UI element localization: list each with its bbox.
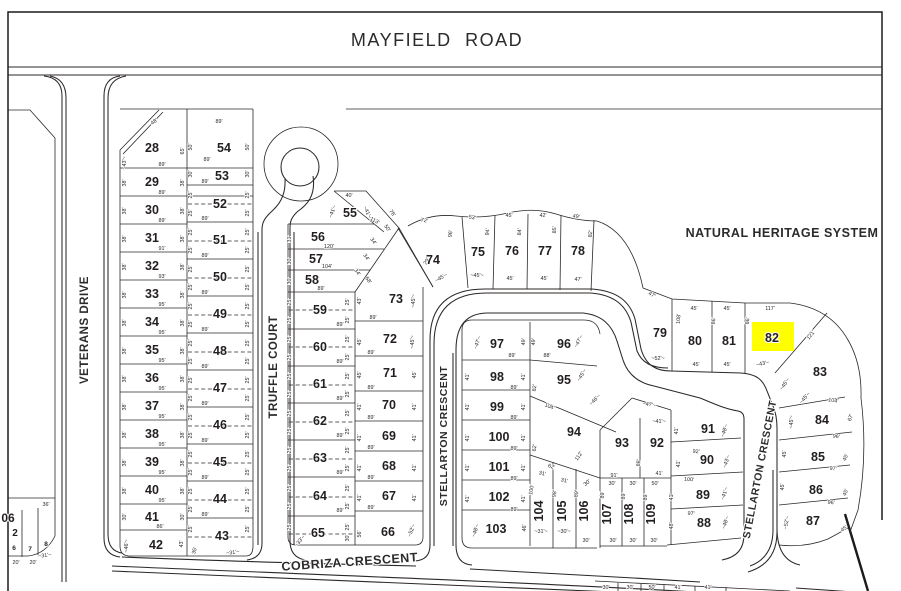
dimension-label: 25' bbox=[345, 390, 351, 397]
lot-number-70: 70 bbox=[382, 398, 396, 412]
lot-number-105: 105 bbox=[555, 501, 569, 522]
dimension-label: 25' bbox=[345, 372, 351, 379]
lot-number-35: 35 bbox=[145, 343, 159, 357]
dimension-label: 45' bbox=[780, 483, 786, 490]
dimension-label: 94' bbox=[485, 228, 492, 236]
dimension-label: 30' bbox=[602, 585, 609, 591]
dimension-label: 41' bbox=[465, 403, 471, 410]
dimension-label: 49' bbox=[572, 214, 580, 221]
lot-number-73: 73 bbox=[389, 292, 403, 306]
dimension-label: 89' bbox=[510, 446, 517, 452]
dimension-label: 25' bbox=[287, 298, 293, 305]
dimension-label: 41' bbox=[521, 495, 527, 502]
lot-number-86: 86 bbox=[809, 483, 823, 497]
dimension-label: 38' bbox=[180, 291, 186, 298]
dimension-label: 100' bbox=[528, 484, 536, 495]
dimension-label: 30' bbox=[122, 513, 128, 520]
dimension-label: 86' bbox=[156, 524, 163, 530]
plat-map: 48'~43'~65'89'38'38'89'38'38'89'38'38'91… bbox=[0, 0, 901, 591]
dimension-label: 89' bbox=[215, 119, 222, 125]
dimension-label: 25' bbox=[287, 390, 293, 397]
lot-number-41: 41 bbox=[145, 510, 159, 524]
lot-number-55: 55 bbox=[343, 206, 357, 220]
lot-number-49: 49 bbox=[213, 307, 227, 321]
lot-number-46: 46 bbox=[213, 418, 227, 432]
dimension-label: 45' bbox=[723, 362, 730, 368]
dimension-label: 25' bbox=[245, 525, 251, 532]
dimension-label: 89' bbox=[508, 353, 515, 359]
lot-number-91: 91 bbox=[701, 422, 715, 436]
dimension-label: 25' bbox=[287, 427, 293, 434]
dimension-label: 41' bbox=[521, 464, 527, 471]
lot-number-54: 54 bbox=[217, 141, 231, 155]
dimension-label: 89' bbox=[336, 433, 343, 439]
dimension-label: 25' bbox=[345, 316, 351, 323]
dimension-label: 89' bbox=[201, 290, 208, 296]
lot-number-60: 60 bbox=[313, 340, 327, 354]
dimension-label: 25' bbox=[245, 228, 251, 235]
dimension-label: 25' bbox=[287, 316, 293, 323]
lot-number-32: 32 bbox=[145, 259, 159, 273]
dimension-label: 95' bbox=[158, 330, 165, 336]
dimension-label: 89' bbox=[201, 179, 208, 185]
lot-number-103: 103 bbox=[486, 522, 507, 536]
dimension-label: 25' bbox=[345, 464, 351, 471]
dimension-label: ~33'~ bbox=[294, 534, 307, 548]
dimension-label: 25' bbox=[188, 431, 194, 438]
dimension-label: 30' bbox=[345, 534, 351, 541]
lot-number-78: 78 bbox=[571, 244, 585, 258]
dimension-label: ~47'~ bbox=[573, 334, 585, 349]
dimension-label: 88' bbox=[543, 353, 550, 359]
lot-number-39: 39 bbox=[145, 455, 159, 469]
dimension-label: 96' bbox=[447, 230, 454, 238]
dimension-label: 41' bbox=[412, 403, 418, 410]
dimension-label: 89' bbox=[510, 476, 517, 482]
lot-number-96: 96 bbox=[557, 337, 571, 351]
lot-number-93: 93 bbox=[615, 436, 629, 450]
lot-number-36: 36 bbox=[145, 371, 159, 385]
dimension-label: 95' bbox=[158, 302, 165, 308]
lot-number-31: 31 bbox=[145, 231, 159, 245]
dimension-label: 45' bbox=[357, 371, 363, 378]
dimension-label: 38' bbox=[122, 487, 128, 494]
dimension-label: 41' bbox=[357, 464, 363, 471]
dimension-label: 89' bbox=[643, 493, 649, 500]
lot-number-94: 94 bbox=[567, 425, 581, 439]
lot-number-06: 06 bbox=[1, 511, 15, 525]
dimension-label: 30' bbox=[629, 538, 636, 544]
lot-number-99: 99 bbox=[490, 400, 504, 414]
lot-number-85: 85 bbox=[811, 450, 825, 464]
dimension-label: 25' bbox=[245, 357, 251, 364]
dimension-label: 25' bbox=[188, 525, 194, 532]
dimension-label: 82' bbox=[588, 230, 595, 238]
dimension-label: 45' bbox=[690, 306, 697, 312]
dimension-label: 25' bbox=[245, 320, 251, 327]
dimension-label: 25' bbox=[245, 283, 251, 290]
dimension-label: 95' bbox=[158, 470, 165, 476]
dimension-label: 65' bbox=[180, 147, 186, 154]
dimension-label: 40' bbox=[345, 193, 352, 199]
dimension-label: 41' bbox=[357, 434, 363, 441]
dimension-label: 25' bbox=[245, 450, 251, 457]
dimension-label: 30' bbox=[626, 585, 633, 591]
dimension-label: 25' bbox=[345, 335, 351, 342]
dimension-label: 104' bbox=[322, 264, 332, 270]
dimension-label: 25' bbox=[188, 505, 194, 512]
dimension-label: 25' bbox=[188, 339, 194, 346]
dimension-label: 41' bbox=[521, 434, 527, 441]
dimension-label: 36' bbox=[42, 502, 49, 508]
dimension-label: ~45'~ bbox=[411, 294, 417, 307]
dimension-label: 30' bbox=[180, 513, 186, 520]
dimension-label: 72' bbox=[420, 217, 428, 224]
dimension-label: 38' bbox=[122, 347, 128, 354]
dimension-label: 25' bbox=[245, 191, 251, 198]
dimension-label: 41' bbox=[521, 403, 527, 410]
dimension-label: 38' bbox=[180, 263, 186, 270]
lot-number-8: 8 bbox=[44, 541, 48, 548]
lot-number-81: 81 bbox=[722, 334, 736, 348]
lot-number-80: 80 bbox=[688, 334, 702, 348]
dimension-label: ~45'~ bbox=[470, 273, 483, 279]
lot-number-33: 33 bbox=[145, 287, 159, 301]
dimension-label: 89' bbox=[367, 385, 374, 391]
map-labels: 48'~43'~65'89'38'38'89'38'38'89'38'38'91… bbox=[1, 30, 878, 591]
dimension-label: ~31'~ bbox=[534, 529, 547, 535]
dimension-label: 68' bbox=[363, 276, 372, 285]
dimension-label: 84' bbox=[517, 228, 523, 235]
dimension-label: 25' bbox=[345, 523, 351, 530]
lot-number-44: 44 bbox=[213, 492, 227, 506]
dimension-label: 38' bbox=[122, 459, 128, 466]
dimension-label: 41' bbox=[412, 464, 418, 471]
dimension-label: 25' bbox=[345, 484, 351, 491]
dimension-label: 20' bbox=[12, 560, 19, 566]
lot-number-95: 95 bbox=[557, 373, 571, 387]
dimension-label: 89' bbox=[367, 350, 374, 356]
dimension-label: 38' bbox=[122, 263, 128, 270]
dimension-label: ~46'~ bbox=[588, 393, 602, 407]
dimension-label: 41' bbox=[669, 493, 675, 500]
dimension-label: 25' bbox=[188, 209, 194, 216]
lot-number-28: 28 bbox=[145, 141, 159, 155]
lot-number-76: 76 bbox=[505, 244, 519, 258]
dimension-label: 41' bbox=[412, 434, 418, 441]
dimension-label: 25' bbox=[188, 228, 194, 235]
dimension-label: ~31'~ bbox=[38, 552, 52, 560]
dimension-label: 45' bbox=[412, 371, 418, 378]
dimension-label: 30' bbox=[629, 481, 636, 487]
dimension-label: 25' bbox=[345, 502, 351, 509]
dimension-label: 89' bbox=[369, 315, 376, 321]
dimension-label: 50' bbox=[245, 143, 251, 150]
dimension-label: 46' bbox=[522, 524, 528, 531]
lot-number-34: 34 bbox=[145, 315, 159, 329]
dimension-label: 95' bbox=[158, 386, 165, 392]
dimension-label: 30' bbox=[608, 481, 615, 487]
lot-number-98: 98 bbox=[490, 370, 504, 384]
dimension-label: 53' bbox=[468, 214, 476, 221]
dimension-label: 25' bbox=[188, 357, 194, 364]
road-label: NATURAL HERITAGE SYSTEM bbox=[686, 226, 879, 240]
dimension-label: ~52'~ bbox=[651, 356, 664, 362]
dimension-label: 25' bbox=[287, 502, 293, 509]
dimension-label: 82' bbox=[532, 384, 539, 392]
dimension-label: 25' bbox=[245, 209, 251, 216]
dimension-label: ~45'~ bbox=[576, 368, 588, 382]
lot-number-83: 83 bbox=[813, 365, 827, 379]
lot-number-43: 43 bbox=[215, 529, 229, 543]
lot-number-84: 84 bbox=[815, 413, 829, 427]
dimension-label: 41' bbox=[412, 494, 418, 501]
dimension-label: 25' bbox=[245, 394, 251, 401]
dimension-label: 89' bbox=[336, 508, 343, 514]
dimension-label: 25' bbox=[188, 450, 194, 457]
lot-number-63: 63 bbox=[313, 451, 327, 465]
lot-number-71: 71 bbox=[383, 366, 397, 380]
dimension-label: ~43'~ bbox=[122, 156, 128, 169]
dimension-label: 30' bbox=[188, 170, 194, 177]
lot-number-57: 57 bbox=[309, 252, 323, 266]
dimension-label: 89' bbox=[621, 492, 627, 499]
dimension-label: 41' bbox=[655, 471, 662, 477]
dimension-label: 38' bbox=[180, 319, 186, 326]
dimension-label: 92' bbox=[692, 449, 699, 455]
dimension-label: 30' bbox=[245, 170, 251, 177]
dimension-label: 25' bbox=[287, 372, 293, 379]
dimension-label: ~41'~ bbox=[652, 419, 665, 425]
dimension-label: 38' bbox=[122, 319, 128, 326]
lot-number-104: 104 bbox=[532, 501, 546, 522]
dimension-label: ~48'~ bbox=[721, 515, 731, 530]
dimension-label: 25' bbox=[245, 431, 251, 438]
dimension-label: 89' bbox=[201, 216, 208, 222]
dimension-label: 89' bbox=[367, 475, 374, 481]
lot-number-2: 2 bbox=[12, 528, 18, 539]
lot-number-61: 61 bbox=[313, 377, 327, 391]
dimension-label: 25' bbox=[245, 265, 251, 272]
lot-number-101: 101 bbox=[489, 460, 510, 474]
lot-number-38: 38 bbox=[145, 427, 159, 441]
dimension-label: 34' bbox=[352, 268, 361, 277]
lot-number-53: 53 bbox=[215, 169, 229, 183]
dimension-label: 86' bbox=[711, 317, 718, 325]
dimension-label: 25' bbox=[188, 302, 194, 309]
dimension-label: 89' bbox=[573, 490, 580, 498]
dimension-label: 25' bbox=[188, 265, 194, 272]
dimension-label: 45' bbox=[692, 362, 699, 368]
lot-number-59: 59 bbox=[313, 303, 327, 317]
dimension-label: 41' bbox=[465, 464, 471, 471]
dimension-label: 89' bbox=[367, 505, 374, 511]
lot-number-107: 107 bbox=[600, 504, 614, 525]
dimension-label: 38' bbox=[180, 431, 186, 438]
dimension-label: ~45'~ bbox=[410, 335, 416, 348]
dimension-label: 50' bbox=[648, 585, 655, 591]
dimension-label: 89' bbox=[201, 327, 208, 333]
lot-boundaries bbox=[8, 109, 864, 591]
lot-number-58: 58 bbox=[305, 273, 319, 287]
dimension-label: 41' bbox=[521, 373, 527, 380]
dimension-label: 25' bbox=[188, 413, 194, 420]
dimension-label: 38' bbox=[122, 235, 128, 242]
dimension-label: 25' bbox=[188, 468, 194, 475]
dimension-label: 31' bbox=[287, 235, 293, 242]
lot-number-37: 37 bbox=[145, 399, 159, 413]
dimension-label: 38' bbox=[122, 179, 128, 186]
dimension-label: 41' bbox=[704, 585, 711, 591]
dimension-label: 41' bbox=[357, 403, 363, 410]
dimension-label: 45' bbox=[506, 276, 513, 282]
dimension-label: 104' bbox=[544, 402, 556, 411]
dimension-label: 30' bbox=[582, 538, 589, 544]
dimension-label: 38' bbox=[180, 375, 186, 382]
dimension-label: 25' bbox=[245, 302, 251, 309]
dimension-label: 112' bbox=[574, 451, 584, 462]
lot-number-75: 75 bbox=[471, 245, 485, 259]
dimension-label: ~45'~ bbox=[789, 415, 795, 428]
dimension-label: 25' bbox=[345, 298, 351, 305]
road-label: STELLARTON CRESCENT bbox=[438, 366, 450, 507]
lot-number-62: 62 bbox=[313, 414, 327, 428]
dimension-label: 89' bbox=[158, 190, 165, 196]
dimension-label: 89' bbox=[336, 396, 343, 402]
dimension-label: 38' bbox=[180, 235, 186, 242]
dimension-label: 89' bbox=[367, 445, 374, 451]
dimension-label: 25' bbox=[345, 353, 351, 360]
lot-number-29: 29 bbox=[145, 175, 159, 189]
dimension-label: 43' bbox=[357, 297, 363, 304]
lot-number-90: 90 bbox=[700, 453, 714, 467]
lot-number-87: 87 bbox=[806, 514, 820, 528]
dimension-label: 25' bbox=[245, 376, 251, 383]
dimension-label: ~47'~ bbox=[473, 335, 483, 350]
dimension-label: 25' bbox=[188, 487, 194, 494]
dimension-label: 25' bbox=[345, 427, 351, 434]
dimension-label: ~43'~ bbox=[756, 360, 770, 369]
dimension-label: 97' bbox=[687, 511, 694, 517]
lot-number-82: 82 bbox=[765, 331, 779, 345]
dimension-label: ~52'~ bbox=[407, 523, 417, 538]
lot-number-40: 40 bbox=[145, 483, 159, 497]
dimension-label: 43' bbox=[179, 540, 185, 547]
lot-number-72: 72 bbox=[383, 332, 397, 346]
dimension-label: 49' bbox=[521, 338, 527, 345]
dimension-label: 25' bbox=[188, 394, 194, 401]
dimension-label: 86' bbox=[745, 317, 752, 325]
dimension-label: 89' bbox=[336, 470, 343, 476]
dimension-label: ~52'~ bbox=[783, 516, 791, 530]
dimension-label: ~43'~ bbox=[722, 454, 732, 469]
dimension-label: 56' bbox=[357, 530, 363, 537]
lot-number-30: 30 bbox=[145, 203, 159, 217]
dimension-label: 30' bbox=[583, 479, 592, 488]
lot-number-7: 7 bbox=[28, 546, 32, 553]
dimension-label: 89' bbox=[201, 475, 208, 481]
dimension-label: 96' bbox=[827, 500, 835, 507]
lot-number-42: 42 bbox=[149, 538, 163, 552]
dimension-label: 62' bbox=[532, 444, 539, 452]
lot-number-79: 79 bbox=[653, 326, 667, 340]
dimension-label: 41' bbox=[465, 434, 471, 441]
dimension-label: 25' bbox=[188, 246, 194, 253]
road-label: COBRIZA CRESCENT bbox=[281, 550, 418, 574]
lot-number-47: 47 bbox=[213, 381, 227, 395]
dimension-label: 104' bbox=[828, 397, 839, 405]
dimension-label: 25' bbox=[345, 409, 351, 416]
dimension-label: 30' bbox=[650, 538, 657, 544]
dimension-label: 89' bbox=[158, 218, 165, 224]
dimension-label: 89' bbox=[203, 157, 210, 163]
dimension-label: 117' bbox=[765, 306, 775, 312]
lot-number-48: 48 bbox=[213, 344, 227, 358]
dimension-label: 95' bbox=[158, 358, 165, 364]
dimension-label: 25' bbox=[245, 468, 251, 475]
dimension-label: 42' bbox=[539, 213, 546, 219]
dimension-label: 97' bbox=[829, 466, 837, 473]
dimension-label: 45' bbox=[842, 488, 850, 497]
dimension-label: 38' bbox=[122, 431, 128, 438]
dimension-label: 89' bbox=[336, 322, 343, 328]
dimension-label: 89' bbox=[201, 401, 208, 407]
dimension-label: 50' bbox=[188, 143, 194, 150]
dimension-label: 41' bbox=[676, 460, 682, 467]
lot-number-109: 109 bbox=[644, 504, 658, 525]
road-label: TRUFFLE COURT bbox=[268, 316, 280, 419]
dimension-label: 45' bbox=[723, 306, 730, 312]
lot-number-69: 69 bbox=[382, 429, 396, 443]
lot-number-51: 51 bbox=[213, 233, 227, 247]
dimension-label: 120' bbox=[324, 244, 334, 250]
dimension-label: 30' bbox=[287, 257, 293, 264]
lot-number-77: 77 bbox=[538, 244, 552, 258]
dimension-label: 25' bbox=[245, 487, 251, 494]
plat-map-viewport: 48'~43'~65'89'38'38'89'38'38'89'38'38'91… bbox=[0, 0, 901, 591]
dimension-label: 38' bbox=[180, 179, 186, 186]
dimension-label: 50' bbox=[651, 481, 658, 487]
dimension-label: 45' bbox=[505, 213, 512, 219]
dimension-label: 25' bbox=[287, 484, 293, 491]
dimension-label: 25' bbox=[245, 505, 251, 512]
dimension-label: 25' bbox=[245, 339, 251, 346]
dimension-label: ~30'~ bbox=[557, 529, 570, 535]
dimension-label: 41' bbox=[674, 585, 681, 591]
dimension-label: ~45'~ bbox=[434, 272, 449, 284]
lot-number-106: 106 bbox=[577, 501, 591, 522]
lot-number-74: 74 bbox=[426, 253, 440, 267]
dimension-label: 38' bbox=[180, 207, 186, 214]
lot-number-45: 45 bbox=[213, 455, 227, 469]
dimension-label: 41' bbox=[465, 495, 471, 502]
dimension-label: 67' bbox=[847, 413, 855, 422]
dimension-label: 38' bbox=[122, 291, 128, 298]
dimension-label: ~48'~ bbox=[720, 423, 730, 438]
dimension-label: 25' bbox=[345, 446, 351, 453]
dimension-label: 31' bbox=[538, 470, 546, 477]
dimension-label: 95' bbox=[158, 498, 165, 504]
dimension-label: 25' bbox=[245, 413, 251, 420]
lot-number-97: 97 bbox=[490, 337, 504, 351]
dimension-label: 89' bbox=[367, 415, 374, 421]
dimension-label: 95' bbox=[158, 414, 165, 420]
lot-number-89: 89 bbox=[696, 488, 710, 502]
dimension-label: 25' bbox=[287, 523, 293, 530]
lot-number-102: 102 bbox=[489, 490, 510, 504]
dimension-label: 25' bbox=[287, 409, 293, 416]
dimension-label: 20' bbox=[29, 560, 36, 566]
